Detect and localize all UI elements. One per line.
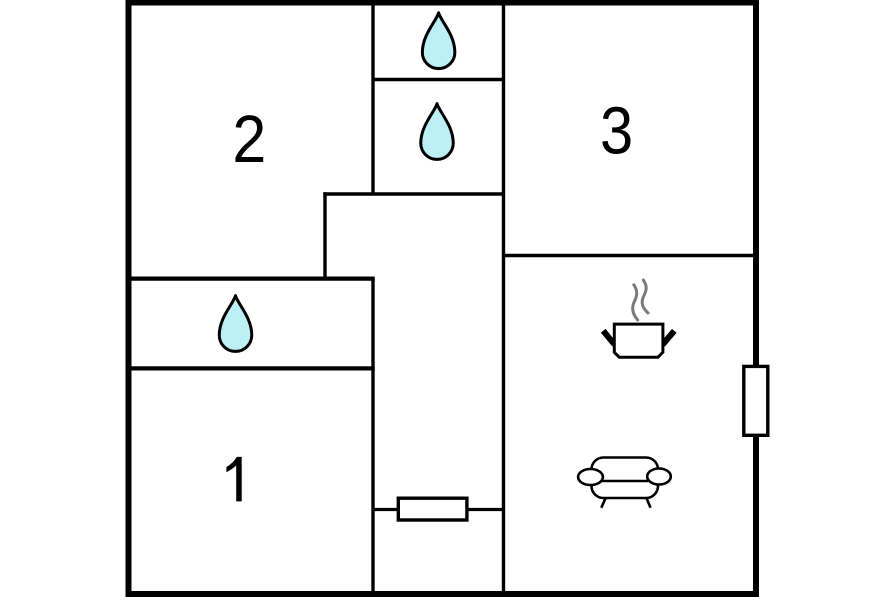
svg-text:3: 3: [600, 94, 633, 168]
svg-text:2: 2: [232, 101, 266, 176]
